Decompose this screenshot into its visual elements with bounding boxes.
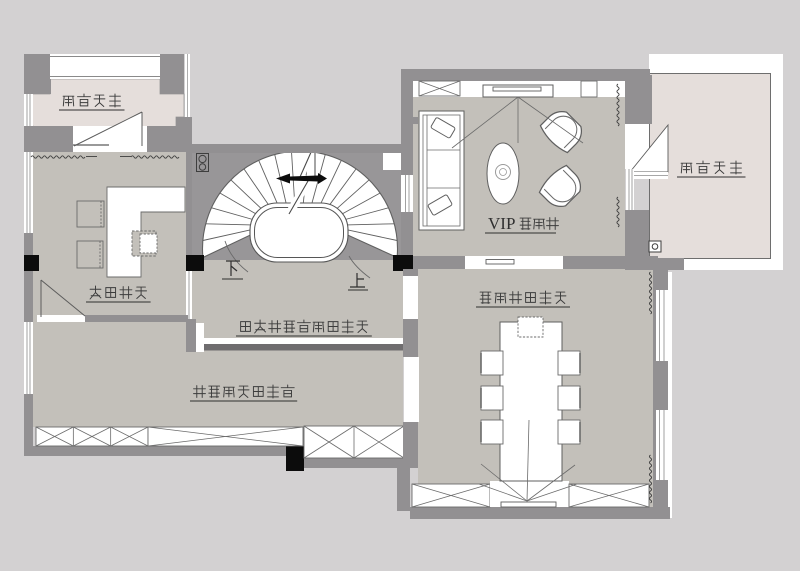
svg-text:VIP: VIP (488, 214, 515, 233)
